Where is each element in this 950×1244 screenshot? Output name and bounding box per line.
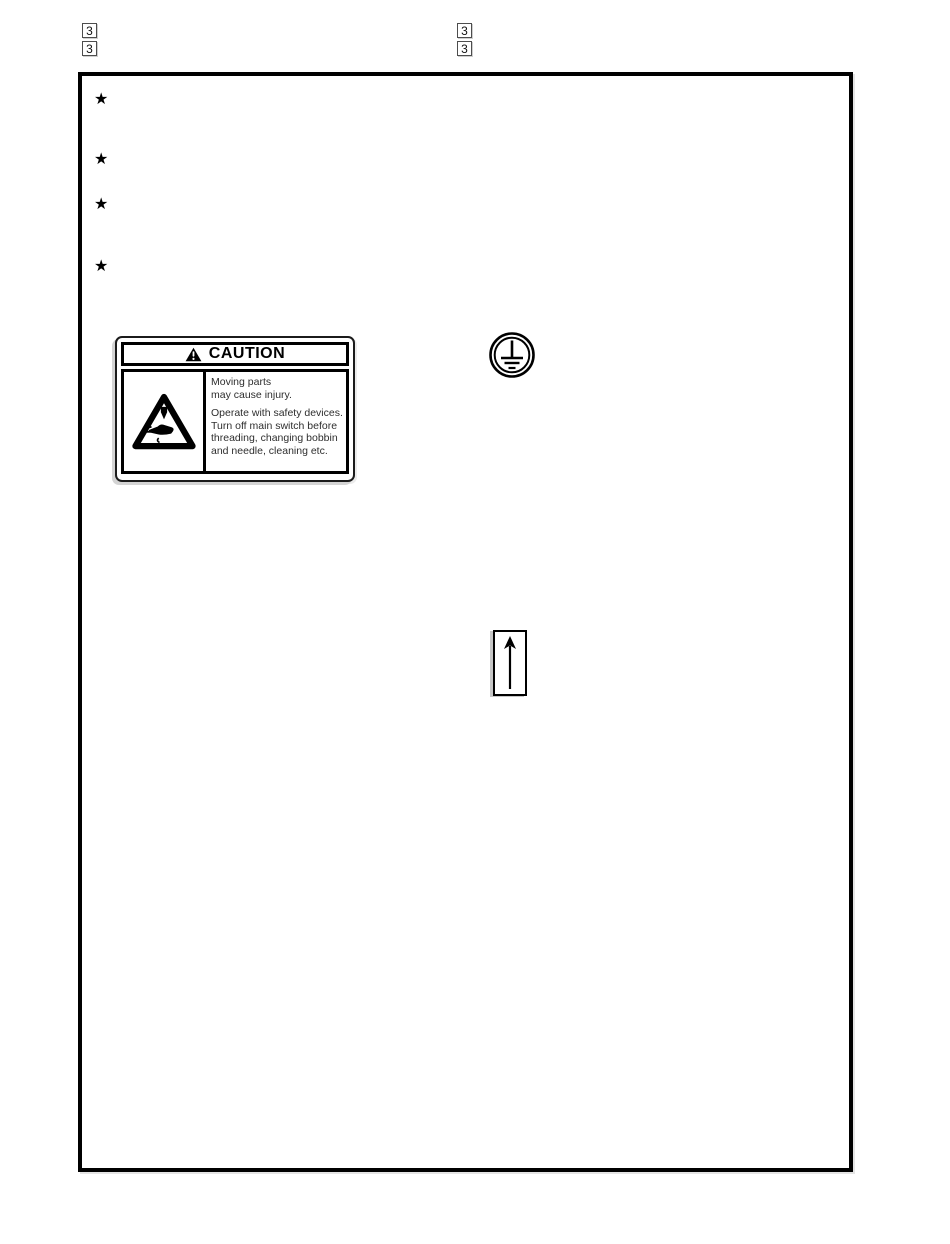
- ref-marker-middle-2: 3: [457, 41, 472, 56]
- caution-title: CAUTION: [209, 345, 285, 363]
- ref-marker-left-2: 3: [82, 41, 97, 56]
- page-border-frame: [78, 72, 853, 1172]
- caution-text-line: threading, changing bobbin: [211, 432, 343, 445]
- bullet-star-4: ★: [94, 258, 108, 274]
- ref-marker-left-1: 3: [82, 23, 97, 38]
- ground-symbol-icon: [488, 331, 536, 379]
- needle-hand-pictogram-icon: [131, 392, 197, 452]
- caution-text-line: Operate with safety devices.: [211, 407, 343, 420]
- caution-text-panel: Moving parts may cause injury. Operate w…: [206, 372, 346, 471]
- scanned-manual-page: { "document": { "ref_markers": ["3", "3"…: [0, 0, 950, 1244]
- caution-pictogram-panel: [124, 372, 206, 471]
- bullet-star-1: ★: [94, 91, 108, 107]
- caution-header: CAUTION: [121, 342, 349, 366]
- up-arrow-icon: [497, 634, 523, 692]
- caution-body: Moving parts may cause injury. Operate w…: [121, 369, 349, 474]
- ref-marker-middle-1: 3: [457, 23, 472, 38]
- caution-warning-label: CAUTION Moving parts may cause injury. O…: [115, 336, 355, 482]
- warning-triangle-icon: [185, 347, 202, 362]
- caution-text-line: and needle, cleaning etc.: [211, 445, 343, 458]
- bullet-star-3: ★: [94, 196, 108, 212]
- caution-text-line: may cause injury.: [211, 389, 343, 402]
- caution-text-line: Turn off main switch before: [211, 420, 343, 433]
- up-arrow-box: [493, 630, 527, 696]
- caution-text-line: Moving parts: [211, 376, 343, 389]
- bullet-star-2: ★: [94, 151, 108, 167]
